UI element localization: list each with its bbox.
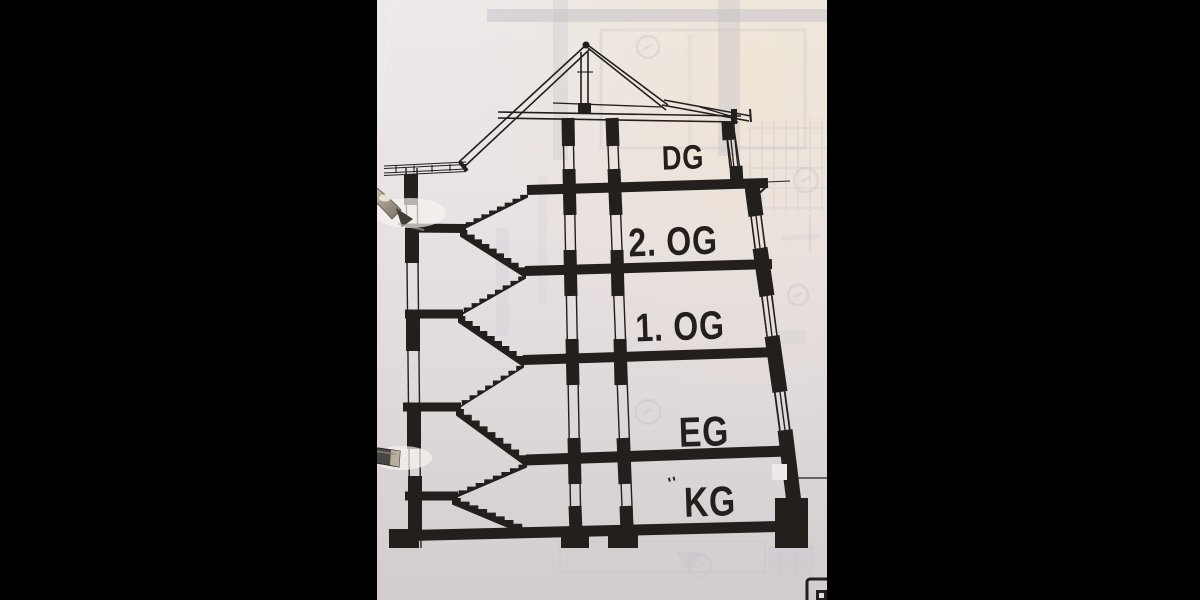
eave-tip-right (750, 109, 751, 122)
slab-dg-floor (527, 183, 768, 190)
bleed-band-top (487, 9, 827, 22)
stamp-box-glyph-notch (819, 593, 824, 598)
floor-label-2og: 2. OG (628, 217, 719, 265)
photo-canvas: DG 2. OG 1. OG EG KG '' (0, 0, 1200, 600)
bleed-strip (496, 228, 509, 336)
ridge-apex (583, 42, 590, 49)
clip-highlight (379, 195, 391, 202)
kg-window-opening (772, 464, 787, 480)
bleed-strip (538, 176, 547, 304)
slab-2og-floor (525, 264, 772, 271)
screenshot: DG 2. OG 1. OG EG KG '' (0, 0, 1200, 600)
floor-label-dg: DG (661, 137, 705, 177)
bleed-mark (782, 236, 820, 238)
bleed-mark (778, 330, 806, 344)
floor-label-1og: 1. OG (635, 302, 726, 350)
king-post-base (578, 103, 591, 113)
photo-of-drawing: DG 2. OG 1. OG EG KG '' (363, 0, 834, 600)
floor-label-eg: EG (678, 409, 730, 457)
floor-label-kg: KG (683, 479, 737, 527)
pen-band (390, 450, 400, 467)
